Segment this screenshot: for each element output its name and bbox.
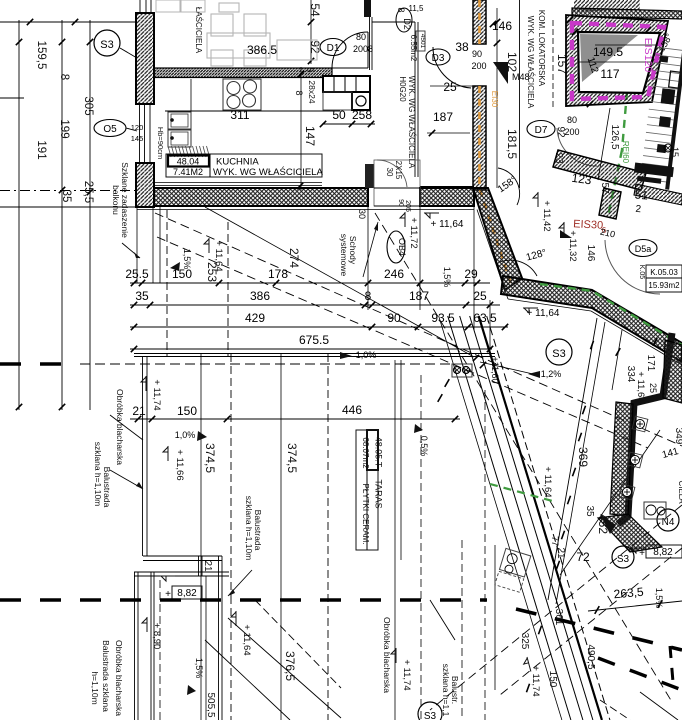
svg-text:191: 191 [35,140,47,159]
svg-text:205: 205 [404,200,411,212]
svg-text:305: 305 [82,96,94,115]
svg-text:334: 334 [625,366,636,383]
svg-text:90: 90 [387,311,401,325]
svg-text:EIS120: EIS120 [642,38,654,73]
svg-text:EI30: EI30 [490,91,499,108]
svg-text:25,5: 25,5 [82,181,94,203]
svg-text:+ 11,74: + 11,74 [151,379,162,410]
svg-text:374,5: 374,5 [285,443,299,473]
svg-text:szklana h=1,1: szklana h=1,1 [441,664,451,717]
svg-text:675.5: 675.5 [299,333,329,347]
svg-text:8: 8 [58,74,70,80]
svg-text:+ 11,72: + 11,72 [408,217,419,248]
svg-text:35: 35 [60,190,72,203]
svg-text:29: 29 [464,267,478,281]
svg-text:K.05: K.05 [638,265,645,280]
svg-text:+ 11,74: + 11,74 [401,659,412,690]
svg-text:Hb=90cm: Hb=90cm [156,127,165,159]
svg-text:30: 30 [357,209,367,219]
svg-text:8,82: 8,82 [177,588,197,599]
svg-text:48.04: 48.04 [177,157,200,167]
svg-text:50: 50 [332,108,346,122]
svg-text:+: + [639,548,645,559]
svg-text:KUCHNIA: KUCHNIA [216,157,259,168]
svg-text:O5: O5 [103,124,117,135]
svg-text:Obróbka blacharska: Obróbka blacharska [114,640,124,716]
svg-text:147: 147 [303,126,317,146]
svg-text:D2: D2 [402,18,412,30]
svg-text:187: 187 [433,110,453,124]
svg-text:68.07m2: 68.07m2 [361,437,370,469]
svg-text:1,2%: 1,2% [541,369,562,379]
svg-text:369: 369 [576,447,590,467]
svg-text:149.5: 149.5 [593,45,623,59]
svg-text:2X15: 2X15 [394,161,403,180]
svg-text:386.5: 386.5 [247,43,277,57]
svg-text:1,5%: 1,5% [442,267,452,288]
svg-text:90: 90 [472,49,482,59]
svg-text:S3: S3 [617,554,630,565]
svg-text:S3: S3 [552,348,565,360]
svg-text:8: 8 [365,289,372,303]
svg-text:S3: S3 [424,711,437,720]
svg-text:Obróbka blacharska: Obróbka blacharska [382,617,392,693]
svg-text:PŁYTKI CERAM.: PŁYTKI CERAM. [361,484,370,545]
svg-text:TARAS: TARAS [374,479,384,508]
svg-text:1,5%: 1,5% [654,588,664,609]
svg-text:Balustrada szklana: Balustrada szklana [101,640,111,712]
svg-text:374,5: 374,5 [203,443,217,473]
svg-text:5: 5 [305,67,315,72]
svg-text:48.05.T: 48.05.T [374,437,384,468]
svg-text:ŁAŚCICIELA: ŁAŚCICIELA [194,7,203,54]
svg-text:WYK. WG WŁAŚCICIELA: WYK. WG WŁAŚCICIELA [407,76,416,169]
svg-text:OB4: OB4 [397,238,407,256]
svg-text:171: 171 [645,355,656,372]
svg-text:21: 21 [202,560,213,572]
svg-text:REI60: REI60 [621,141,630,164]
svg-text:146: 146 [585,245,596,262]
svg-text:4501: 4501 [419,34,426,49]
svg-text:1,0%: 1,0% [175,430,196,440]
svg-text:8: 8 [294,90,304,95]
svg-text:15.93m2: 15.93m2 [648,281,680,290]
svg-text:8,82: 8,82 [653,547,673,558]
svg-text:7.41M2: 7.41M2 [173,167,203,177]
svg-text:szklana h=1,10m: szklana h=1,10m [244,496,254,561]
svg-text:28x24: 28x24 [307,80,317,103]
svg-text:D5a: D5a [635,244,652,254]
svg-text:187: 187 [409,289,429,303]
svg-text:258: 258 [352,108,372,122]
svg-text:77: 77 [550,536,560,546]
svg-text:11,5: 11,5 [409,4,425,13]
svg-text:246: 246 [384,267,404,281]
svg-text:181,5: 181,5 [505,129,519,159]
svg-text:+ 11,42: + 11,42 [541,200,552,231]
svg-text:200: 200 [471,61,486,71]
svg-text:1,0%: 1,0% [356,350,377,360]
svg-text:35: 35 [584,505,595,517]
svg-text:63.5: 63.5 [473,311,497,325]
svg-text:361: 361 [553,609,564,626]
svg-text:szklana h=1,10m: szklana h=1,10m [93,442,103,507]
svg-text:KOM. LOKATORSKA: KOM. LOKATORSKA [537,10,546,87]
svg-text:90: 90 [397,199,404,207]
svg-text:325: 325 [519,633,530,650]
svg-text:80: 80 [567,115,577,125]
svg-text:30: 30 [385,168,394,177]
svg-text:8: 8 [396,7,406,12]
svg-text:+ 11,64: + 11,64 [635,371,646,402]
svg-text:429: 429 [245,311,265,325]
svg-text:+ 11,32: + 11,32 [567,230,578,261]
svg-text:+ 11,64: + 11,64 [527,308,560,319]
svg-text:1,5%: 1,5% [182,249,192,270]
svg-text:+ 8,90: + 8,90 [151,623,162,650]
svg-text:+ 11,64: + 11,64 [542,466,553,497]
svg-text:386: 386 [250,289,270,303]
svg-text:Obróbka blacharska: Obróbka blacharska [115,389,125,465]
svg-text:25: 25 [648,383,658,393]
svg-text:159,5: 159,5 [35,41,47,70]
svg-text:h=1,10m: h=1,10m [90,671,100,704]
svg-text:2008: 2008 [353,44,373,54]
svg-text:systemowe: systemowe [339,234,349,277]
svg-text:0,5%: 0,5% [419,436,429,457]
svg-text:178: 178 [268,267,288,281]
svg-text:21: 21 [555,547,566,559]
svg-text:+ 11,74: + 11,74 [530,665,541,696]
svg-text:150: 150 [177,404,197,418]
svg-text:H0G20: H0G20 [398,76,407,102]
svg-text:25.5: 25.5 [125,267,149,281]
svg-text:93.5: 93.5 [431,311,455,325]
svg-text:490,5: 490,5 [585,644,596,669]
svg-text:+ 11,64: + 11,64 [213,240,224,271]
svg-text:balkonu: balkonu [111,185,121,215]
svg-text:80: 80 [356,32,366,42]
svg-text:35: 35 [135,289,149,303]
svg-text:D1: D1 [327,43,340,54]
svg-text:38: 38 [455,40,469,54]
svg-text:311: 311 [230,108,249,122]
svg-text:D7: D7 [535,125,548,136]
svg-text:+ 11,64: + 11,64 [431,219,464,230]
svg-text:6.55m2: 6.55m2 [409,35,418,62]
svg-text:+ 11,66: + 11,66 [174,449,185,480]
svg-text:446: 446 [342,403,362,417]
svg-text:WYK. WG WŁAŚCICIELA: WYK. WG WŁAŚCICIELA [213,166,323,178]
svg-text:D3: D3 [432,53,445,64]
svg-text:117: 117 [600,67,619,81]
svg-text:S3: S3 [100,39,113,51]
svg-text:72: 72 [576,550,590,564]
svg-text:349: 349 [673,428,682,445]
svg-text:25: 25 [473,289,487,303]
svg-text:54: 54 [308,3,322,17]
svg-text:25: 25 [443,80,457,94]
svg-text:WYK. WG WŁAŚCICIELA: WYK. WG WŁAŚCICIELA [526,16,535,109]
svg-text:505,5: 505,5 [205,692,216,717]
svg-text:274: 274 [287,248,301,268]
svg-text:263,5: 263,5 [613,585,644,602]
svg-text:21: 21 [132,404,146,418]
svg-text:145: 145 [131,134,144,143]
svg-text:+ 11,64: + 11,64 [241,624,252,655]
svg-text:CIELA: CIELA [677,480,682,504]
svg-text:199: 199 [58,119,70,138]
svg-text:1,5%: 1,5% [194,658,204,679]
svg-text:150: 150 [547,671,558,688]
svg-text:K.05.03: K.05.03 [650,268,678,277]
svg-text:EIS30: EIS30 [573,218,604,232]
svg-text:126,5: 126,5 [609,124,620,149]
